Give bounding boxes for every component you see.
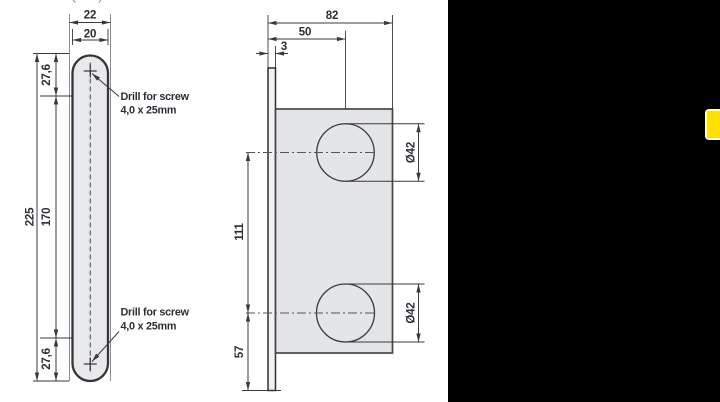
dim-label-d42-bottom: Ø42 <box>406 302 418 323</box>
dim-label-82: 82 <box>326 10 338 22</box>
dimension-width-inner: 20 <box>73 29 109 46</box>
yellow-edge-tab[interactable] <box>705 109 720 140</box>
drill-note-bottom-line1: Drill for screw <box>121 307 190 319</box>
black-side-panel <box>448 0 720 402</box>
dim-label-111: 111 <box>234 223 246 241</box>
face-plate-edge <box>268 68 276 391</box>
side-view: 82 50 3 <box>234 10 425 391</box>
dim-label-50: 50 <box>299 27 311 39</box>
dim-label-170: 170 <box>41 208 53 227</box>
drill-note-bottom-line2: 4,0 x 25mm <box>121 321 177 333</box>
dimension-plate-thickness: 3 <box>256 41 288 54</box>
dim-label-3: 3 <box>281 41 287 53</box>
drill-note-top-line1: Drill for screw <box>121 91 190 103</box>
dimension-drawing: Drill for screw 4,0 x 25mm Drill for scr… <box>0 0 448 402</box>
drill-note-top-line2: 4,0 x 25mm <box>121 105 177 117</box>
yellow-tab-fill <box>707 111 720 138</box>
dimension-height-total: 225 <box>25 54 38 382</box>
screen: Drill for screw 4,0 x 25mm Drill for scr… <box>0 0 720 402</box>
dim-label-27-6-top: 27,6 <box>41 64 53 86</box>
dimension-hole-center-depth: 50 <box>268 27 346 40</box>
dim-label-225: 225 <box>25 207 37 226</box>
yellow-tab-rect <box>707 111 720 138</box>
cropped-text-artifact <box>73 0 101 3</box>
dimension-hole-spacing: 111 <box>234 153 248 314</box>
dimension-width-outer: 22 <box>70 10 111 23</box>
dim-label-27-6-bottom: 27,6 <box>41 348 53 370</box>
dim-label-22: 22 <box>84 10 96 22</box>
dim-label-d42-top: Ø42 <box>406 142 418 163</box>
dim-label-57: 57 <box>234 346 246 358</box>
dim-label-20: 20 <box>84 29 96 41</box>
technical-drawing-area: Drill for screw 4,0 x 25mm Drill for scr… <box>0 0 448 402</box>
dimension-chain: 27,6 170 27,6 <box>41 54 56 382</box>
dimension-depth-total: 82 <box>268 10 393 23</box>
front-view: Drill for screw 4,0 x 25mm Drill for scr… <box>25 0 190 381</box>
